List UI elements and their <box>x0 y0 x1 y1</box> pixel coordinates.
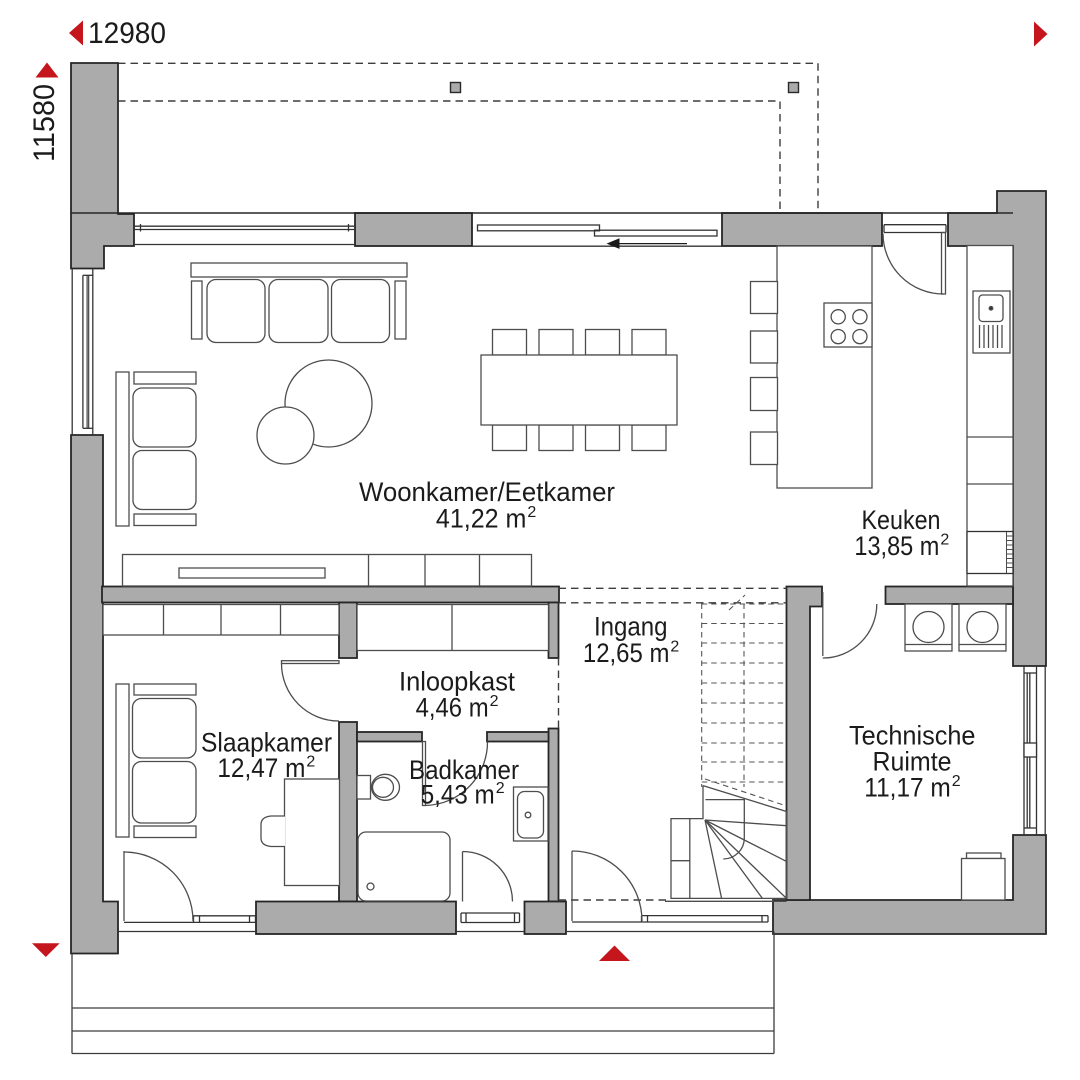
svg-text:11580: 11580 <box>28 84 61 162</box>
svg-text:5,43 m: 5,43 m <box>421 779 495 809</box>
svg-text:12980: 12980 <box>88 17 166 50</box>
svg-text:2: 2 <box>670 638 679 655</box>
svg-text:13,85 m: 13,85 m <box>854 531 939 561</box>
svg-text:11,17 m: 11,17 m <box>864 773 951 803</box>
svg-text:Woonkamer/Eetkamer: Woonkamer/Eetkamer <box>359 477 615 507</box>
svg-text:2: 2 <box>306 754 315 771</box>
svg-text:2: 2 <box>490 693 499 710</box>
svg-text:2: 2 <box>496 780 505 797</box>
svg-text:41,22 m: 41,22 m <box>436 504 527 534</box>
svg-text:12,47 m: 12,47 m <box>217 753 305 783</box>
svg-text:2: 2 <box>940 532 949 549</box>
svg-text:2: 2 <box>952 773 961 790</box>
svg-text:12,65 m: 12,65 m <box>583 638 670 668</box>
svg-text:4,46 m: 4,46 m <box>416 693 489 723</box>
svg-text:2: 2 <box>527 504 536 521</box>
